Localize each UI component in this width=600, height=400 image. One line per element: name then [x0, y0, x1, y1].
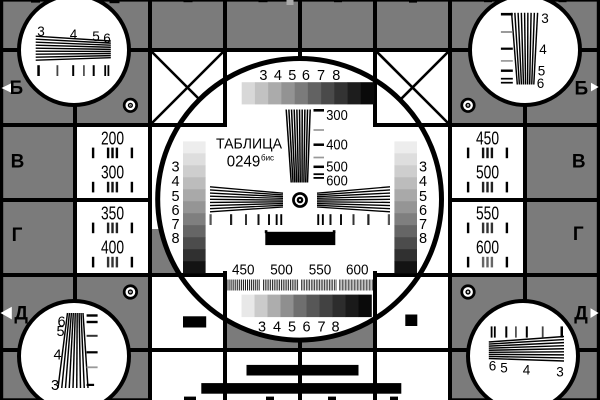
svg-text:4: 4 — [523, 363, 531, 378]
svg-text:500: 500 — [270, 263, 293, 279]
svg-text:8: 8 — [332, 68, 340, 84]
svg-text:0249: 0249 — [227, 153, 261, 170]
svg-text:350: 350 — [101, 202, 124, 223]
svg-text:5: 5 — [56, 324, 64, 340]
svg-text:Б: Б — [574, 78, 588, 99]
svg-text:8: 8 — [171, 231, 179, 247]
svg-text:6: 6 — [302, 68, 310, 84]
svg-text:Б: Б — [9, 78, 23, 99]
svg-text:8: 8 — [419, 231, 427, 247]
svg-text:4: 4 — [539, 42, 547, 57]
svg-text:7: 7 — [317, 68, 325, 84]
svg-text:3: 3 — [556, 365, 564, 380]
svg-text:8: 8 — [332, 320, 340, 336]
svg-text:бис: бис — [261, 154, 274, 163]
svg-text:600: 600 — [346, 263, 369, 279]
svg-text:4: 4 — [171, 174, 179, 190]
svg-text:Д: Д — [14, 304, 28, 325]
svg-text:3: 3 — [51, 378, 59, 394]
svg-text:Д: Д — [574, 304, 588, 325]
svg-text:4: 4 — [274, 68, 282, 84]
svg-text:550: 550 — [476, 202, 499, 223]
svg-text:200: 200 — [101, 127, 124, 148]
svg-text:600: 600 — [476, 237, 499, 258]
svg-text:5: 5 — [288, 68, 296, 84]
svg-text:600: 600 — [326, 173, 348, 189]
svg-text:450: 450 — [476, 127, 499, 148]
svg-text:4: 4 — [419, 174, 427, 190]
svg-text:450: 450 — [232, 263, 255, 279]
svg-text:5: 5 — [92, 29, 100, 44]
svg-text:5: 5 — [288, 320, 296, 336]
svg-text:3: 3 — [541, 11, 549, 26]
svg-text:400: 400 — [101, 237, 124, 258]
svg-text:300: 300 — [326, 108, 348, 124]
svg-text:4: 4 — [70, 27, 78, 42]
svg-text:6: 6 — [537, 76, 545, 91]
svg-text:7: 7 — [317, 320, 325, 336]
svg-text:6: 6 — [302, 320, 310, 336]
svg-text:550: 550 — [309, 263, 332, 279]
svg-text:ТАБЛИЦА: ТАБЛИЦА — [216, 136, 282, 152]
svg-text:6: 6 — [103, 31, 111, 46]
svg-text:400: 400 — [326, 138, 348, 154]
svg-text:Г: Г — [573, 224, 584, 245]
svg-text:3: 3 — [258, 320, 266, 336]
svg-text:300: 300 — [101, 162, 124, 183]
svg-text:5: 5 — [500, 361, 508, 376]
svg-text:В: В — [11, 151, 25, 172]
svg-text:Г: Г — [12, 225, 23, 246]
svg-text:500: 500 — [476, 162, 499, 183]
svg-text:6: 6 — [489, 359, 497, 374]
svg-text:3: 3 — [37, 24, 45, 39]
svg-text:3: 3 — [259, 68, 267, 84]
svg-text:В: В — [572, 151, 586, 172]
svg-text:4: 4 — [53, 347, 61, 363]
svg-text:4: 4 — [273, 320, 281, 336]
